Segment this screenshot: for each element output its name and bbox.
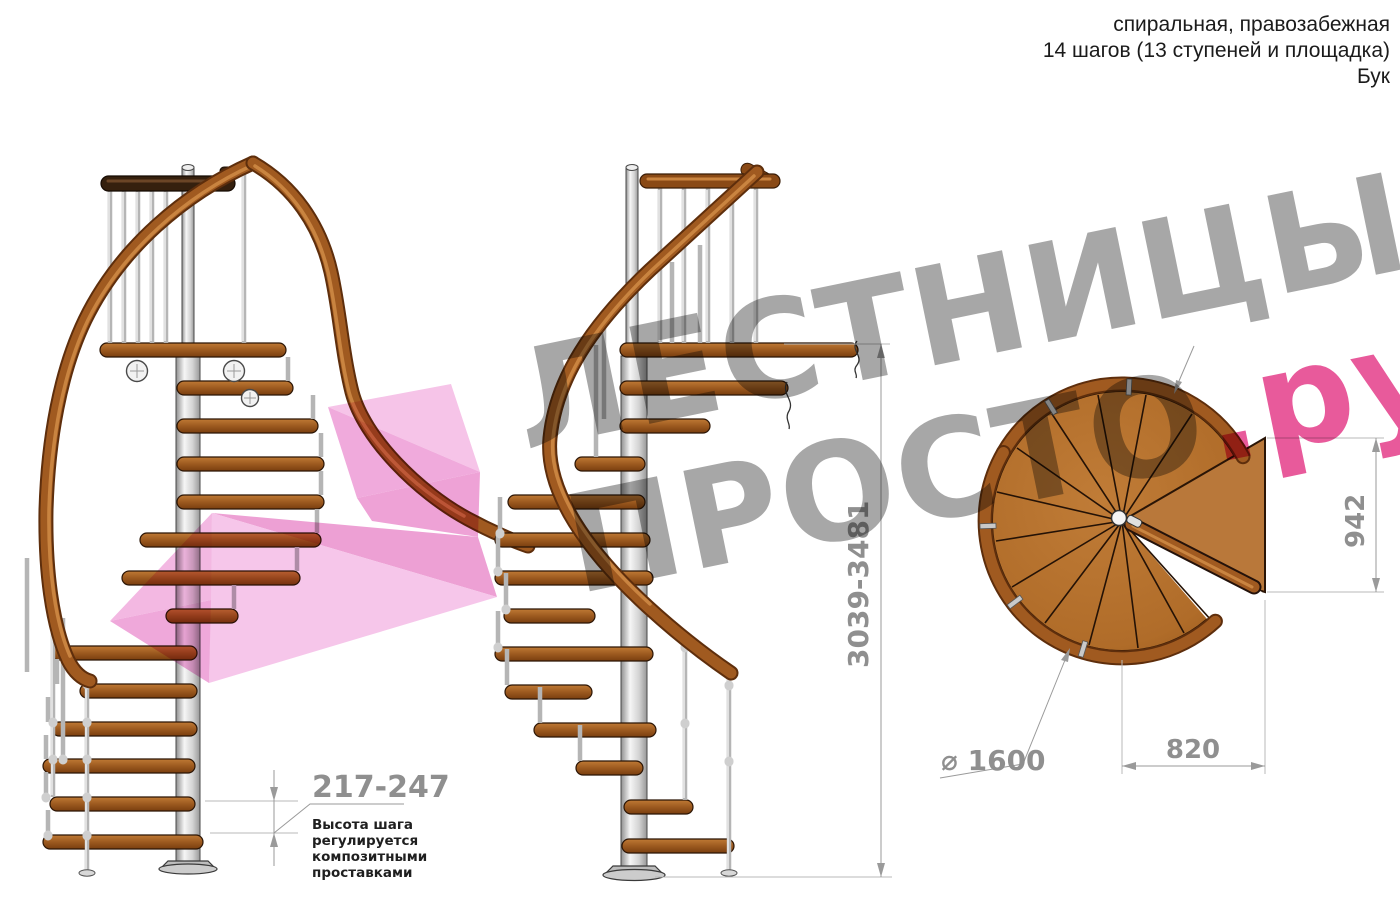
page: 217-247 Высота шага регулируется компози… — [0, 0, 1400, 914]
spec-header: спиральная, правозабежная 14 шагов (13 с… — [1043, 12, 1390, 90]
spec-material: Бук — [1043, 64, 1390, 90]
folded-arrow — [110, 384, 497, 683]
spec-type: спиральная, правозабежная — [1043, 12, 1390, 38]
spec-steps: 14 шагов (13 ступеней и площадка) — [1043, 38, 1390, 64]
